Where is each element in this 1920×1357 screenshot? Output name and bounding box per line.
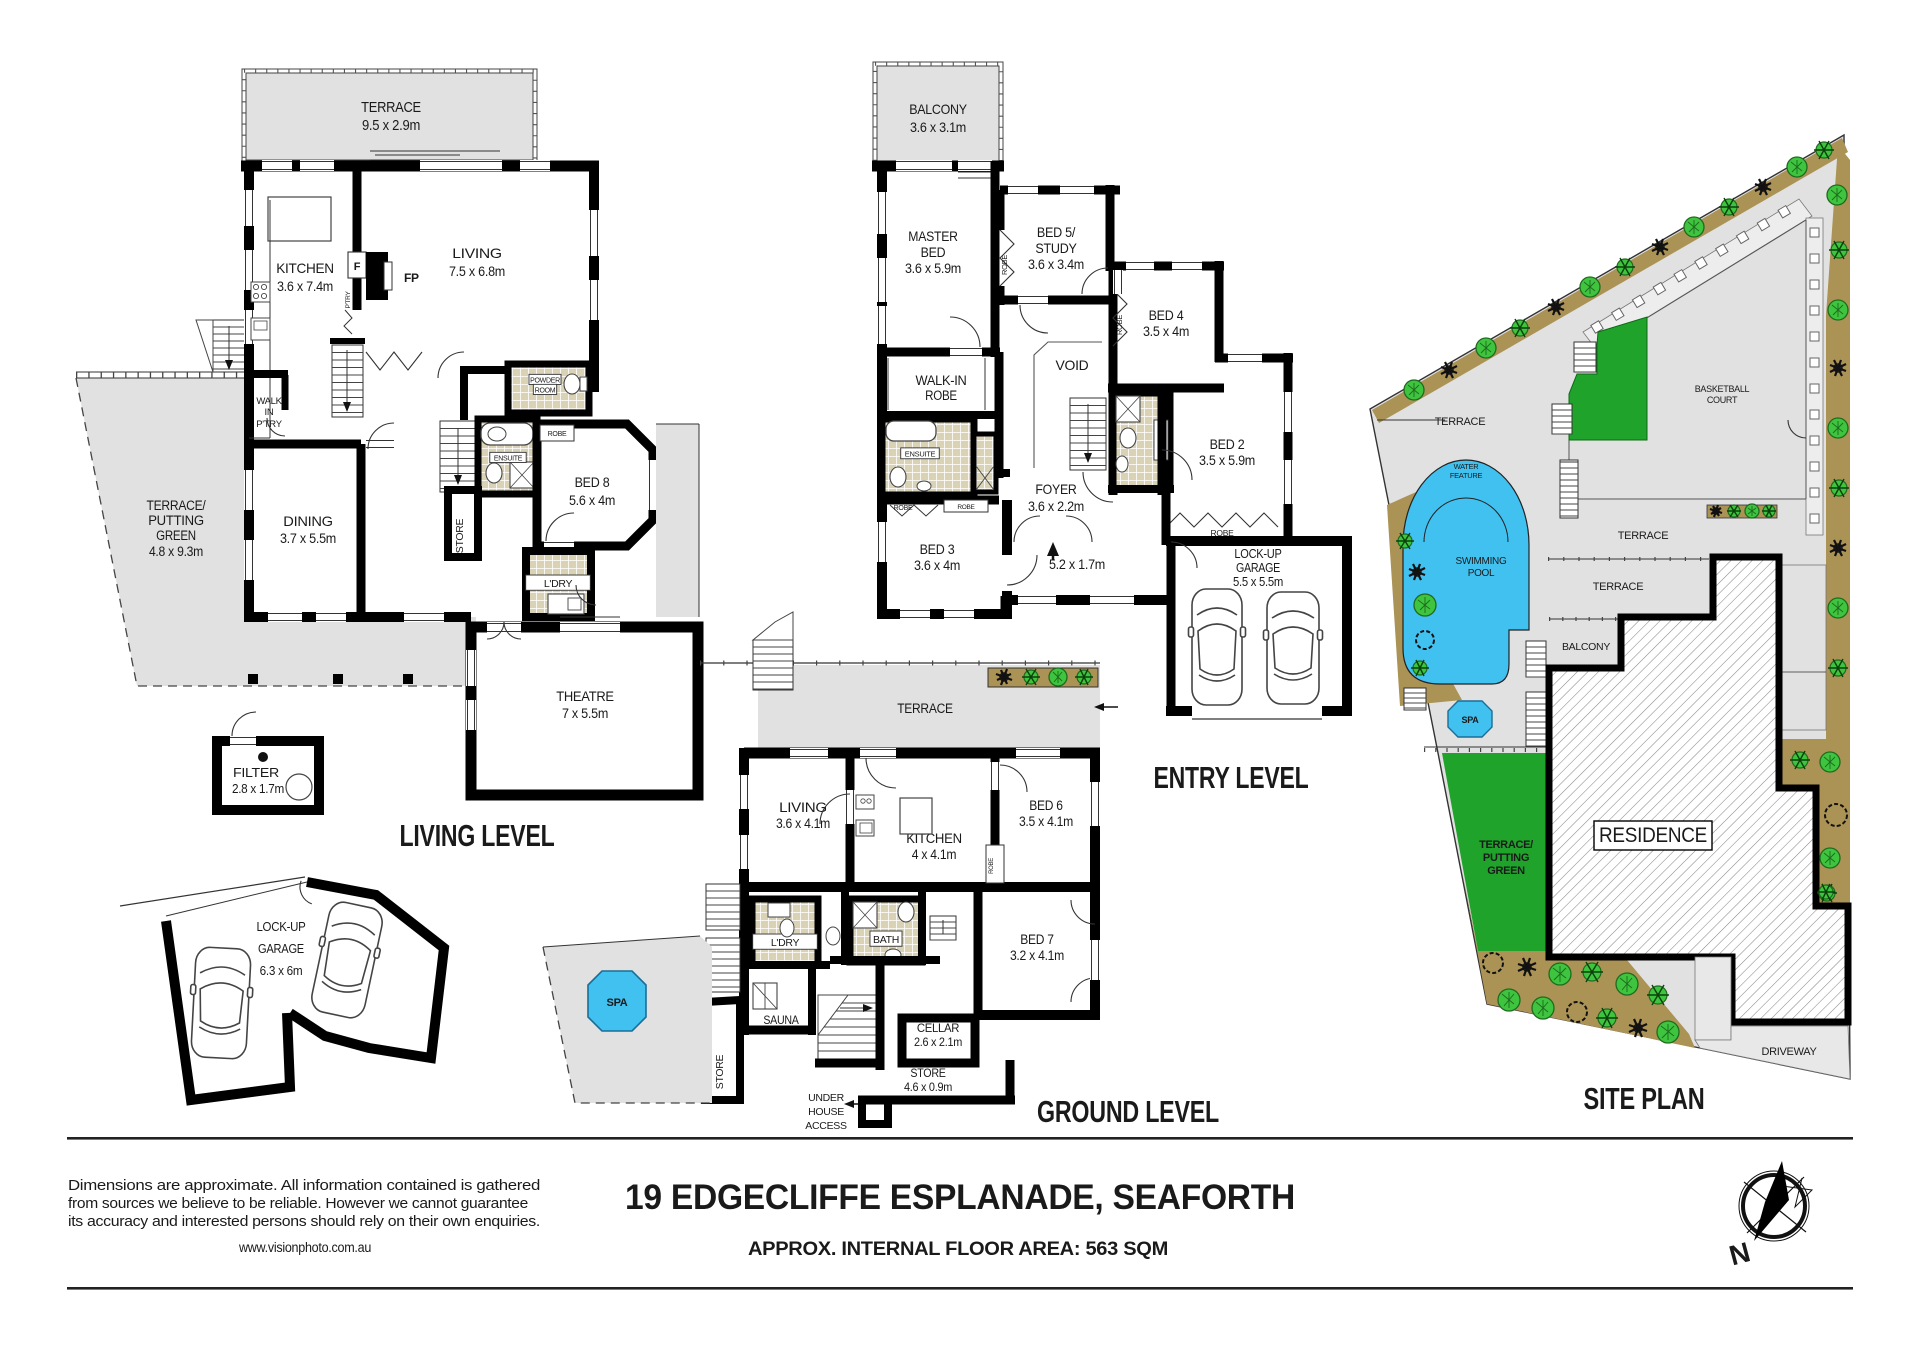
svg-text:BED 5/: BED 5/	[1037, 224, 1076, 240]
svg-text:BED 6: BED 6	[1029, 798, 1063, 813]
svg-text:TERRACE: TERRACE	[1593, 581, 1643, 593]
svg-text:BATH: BATH	[873, 934, 899, 946]
svg-text:L'DRY: L'DRY	[771, 937, 800, 949]
svg-text:BED: BED	[921, 244, 946, 260]
svg-text:2.6 x 2.1m: 2.6 x 2.1m	[914, 1035, 962, 1049]
svg-text:BED 8: BED 8	[575, 474, 610, 490]
svg-text:4.6 x 0.9m: 4.6 x 0.9m	[904, 1080, 952, 1094]
svg-text:3.6 x 4m: 3.6 x 4m	[914, 557, 960, 573]
svg-text:4.8 x 9.3m: 4.8 x 9.3m	[149, 544, 203, 559]
svg-text:ROBE: ROBE	[548, 431, 567, 438]
svg-text:ROBE: ROBE	[925, 388, 957, 403]
svg-text:ROBE: ROBE	[1000, 255, 1009, 275]
svg-text:3.6 x 3.4m: 3.6 x 3.4m	[1028, 256, 1084, 272]
svg-text:LIVING: LIVING	[779, 800, 827, 815]
svg-text:FP: FP	[404, 271, 419, 285]
svg-text:SPA: SPA	[607, 997, 628, 1009]
svg-text:ENSUITE: ENSUITE	[494, 455, 523, 462]
svg-text:COURT: COURT	[1707, 395, 1738, 405]
svg-text:IN: IN	[265, 407, 274, 418]
svg-text:2.8 x 1.7m: 2.8 x 1.7m	[232, 781, 284, 796]
svg-text:ROOM: ROOM	[535, 387, 556, 394]
svg-text:DINING: DINING	[283, 513, 332, 529]
svg-text:GROUND LEVEL: GROUND LEVEL	[1037, 1094, 1219, 1129]
svg-text:BALCONY: BALCONY	[909, 101, 967, 117]
svg-text:UNDER: UNDER	[808, 1092, 845, 1104]
svg-text:WALK: WALK	[256, 396, 282, 407]
svg-text:3.5 x 4.1m: 3.5 x 4.1m	[1019, 814, 1073, 829]
svg-text:ROBE: ROBE	[989, 858, 995, 874]
svg-text:6.3 x 6m: 6.3 x 6m	[260, 963, 303, 978]
svg-text:POWDER: POWDER	[530, 377, 560, 384]
svg-text:TERRACE: TERRACE	[361, 100, 421, 116]
svg-text:from sources we believe to be: from sources we believe to be reliable. …	[68, 1196, 528, 1212]
svg-text:LOCK-UP: LOCK-UP	[1234, 547, 1281, 561]
svg-text:SWIMMING: SWIMMING	[1456, 556, 1507, 567]
svg-text:TERRACE/: TERRACE/	[1479, 839, 1533, 851]
svg-text:ROBE: ROBE	[1211, 528, 1235, 538]
svg-text:4 x 4.1m: 4 x 4.1m	[912, 847, 956, 862]
svg-text:STORE: STORE	[454, 518, 466, 553]
svg-text:3.5 x 5.9m: 3.5 x 5.9m	[1199, 452, 1255, 468]
svg-text:BED 4: BED 4	[1149, 307, 1184, 323]
svg-text:FEATURE: FEATURE	[1450, 471, 1483, 480]
svg-text:TERRACE: TERRACE	[1618, 530, 1668, 542]
svg-text:ACCESS: ACCESS	[805, 1120, 847, 1132]
svg-text:MASTER: MASTER	[908, 228, 958, 244]
svg-text:STORE: STORE	[910, 1066, 946, 1080]
svg-text:GREEN: GREEN	[1487, 865, 1525, 877]
svg-text:STORE: STORE	[714, 1054, 726, 1089]
svg-text:GARAGE: GARAGE	[1236, 561, 1280, 575]
svg-text:5.6 x 4m: 5.6 x 4m	[569, 492, 615, 508]
svg-text:BED 3: BED 3	[920, 541, 955, 557]
svg-text:3.6 x 7.4m: 3.6 x 7.4m	[277, 278, 333, 294]
svg-text:P'TRY: P'TRY	[345, 291, 352, 309]
svg-text:ENSUITE: ENSUITE	[905, 449, 936, 458]
svg-text:KITCHEN: KITCHEN	[276, 260, 334, 276]
svg-text:F: F	[354, 261, 361, 273]
svg-text:5.5 x 5.5m: 5.5 x 5.5m	[1233, 575, 1283, 589]
svg-text:BED 2: BED 2	[1210, 436, 1245, 452]
svg-text:FOYER: FOYER	[1035, 481, 1076, 497]
svg-text:SITE PLAN: SITE PLAN	[1584, 1081, 1705, 1116]
svg-text:DRIVEWAY: DRIVEWAY	[1761, 1046, 1817, 1058]
svg-text:CELLAR: CELLAR	[917, 1021, 960, 1035]
svg-text:RESIDENCE: RESIDENCE	[1599, 824, 1707, 847]
svg-text:5.2 x 1.7m: 5.2 x 1.7m	[1049, 556, 1105, 572]
svg-text:ROBE: ROBE	[957, 504, 975, 511]
svg-text:LIVING LEVEL: LIVING LEVEL	[400, 818, 555, 853]
svg-text:VOID: VOID	[1056, 357, 1089, 373]
svg-text:APPROX. INTERNAL FLOOR AREA: 5: APPROX. INTERNAL FLOOR AREA: 563 SQM	[748, 1239, 1168, 1260]
svg-text:SPA: SPA	[1462, 715, 1480, 725]
svg-text:Dimensions are approximate.: Dimensions are approximate. All informat…	[68, 1178, 540, 1194]
svg-text:WALK-IN: WALK-IN	[916, 373, 967, 388]
svg-text:BED 7: BED 7	[1020, 932, 1054, 947]
svg-text:WATER: WATER	[1454, 462, 1480, 471]
svg-text:19 EDGECLIFFE ESPLANADE, SEAFO: 19 EDGECLIFFE ESPLANADE, SEAFORTH	[625, 1178, 1295, 1217]
svg-text:3.6 x 4.1m: 3.6 x 4.1m	[776, 816, 830, 831]
svg-text:THEATRE: THEATRE	[556, 688, 614, 704]
svg-text:7.5 x 6.8m: 7.5 x 6.8m	[449, 263, 505, 279]
svg-text:GREEN: GREEN	[156, 528, 196, 543]
svg-text:3.6 x 3.1m: 3.6 x 3.1m	[910, 119, 966, 135]
svg-text:ROBE: ROBE	[1115, 315, 1124, 335]
svg-text:TERRACE/: TERRACE/	[147, 498, 206, 513]
svg-text:STUDY: STUDY	[1035, 240, 1077, 256]
svg-text:GARAGE: GARAGE	[258, 941, 304, 956]
svg-text:PUTTING: PUTTING	[1483, 852, 1529, 864]
svg-text:3.6 x 2.2m: 3.6 x 2.2m	[1028, 498, 1084, 514]
svg-text:ENTRY LEVEL: ENTRY LEVEL	[1154, 760, 1309, 795]
svg-text:SAUNA: SAUNA	[763, 1013, 799, 1027]
svg-text:PUTTING: PUTTING	[148, 513, 204, 528]
svg-text:HOUSE: HOUSE	[808, 1106, 844, 1118]
svg-text:L'DRY: L'DRY	[544, 578, 573, 590]
svg-text:FILTER: FILTER	[233, 765, 279, 780]
svg-text:BASKETBALL: BASKETBALL	[1695, 384, 1750, 394]
svg-text:LOCK-UP: LOCK-UP	[256, 919, 305, 934]
svg-text:POOL: POOL	[1468, 568, 1495, 579]
svg-text:P'TRY: P'TRY	[256, 419, 282, 430]
svg-text:TERRACE: TERRACE	[897, 701, 953, 716]
svg-text:3.2 x 4.1m: 3.2 x 4.1m	[1010, 948, 1064, 963]
svg-text:TERRACE: TERRACE	[1435, 416, 1485, 428]
svg-text:7 x 5.5m: 7 x 5.5m	[562, 705, 608, 721]
svg-text:9.5 x 2.9m: 9.5 x 2.9m	[362, 118, 420, 134]
svg-text:3.6 x 5.9m: 3.6 x 5.9m	[905, 260, 961, 276]
svg-text:BALCONY: BALCONY	[1562, 641, 1610, 653]
svg-text:ROBE: ROBE	[894, 505, 913, 512]
svg-text:www.visionphoto.com.au: www.visionphoto.com.au	[238, 1240, 371, 1255]
svg-text:3.7 x 5.5m: 3.7 x 5.5m	[280, 530, 336, 546]
svg-text:its accuracy and interested pe: its accuracy and interested persons shou…	[68, 1214, 540, 1230]
svg-text:LIVING: LIVING	[452, 245, 501, 261]
svg-text:3.5 x 4m: 3.5 x 4m	[1143, 323, 1189, 339]
